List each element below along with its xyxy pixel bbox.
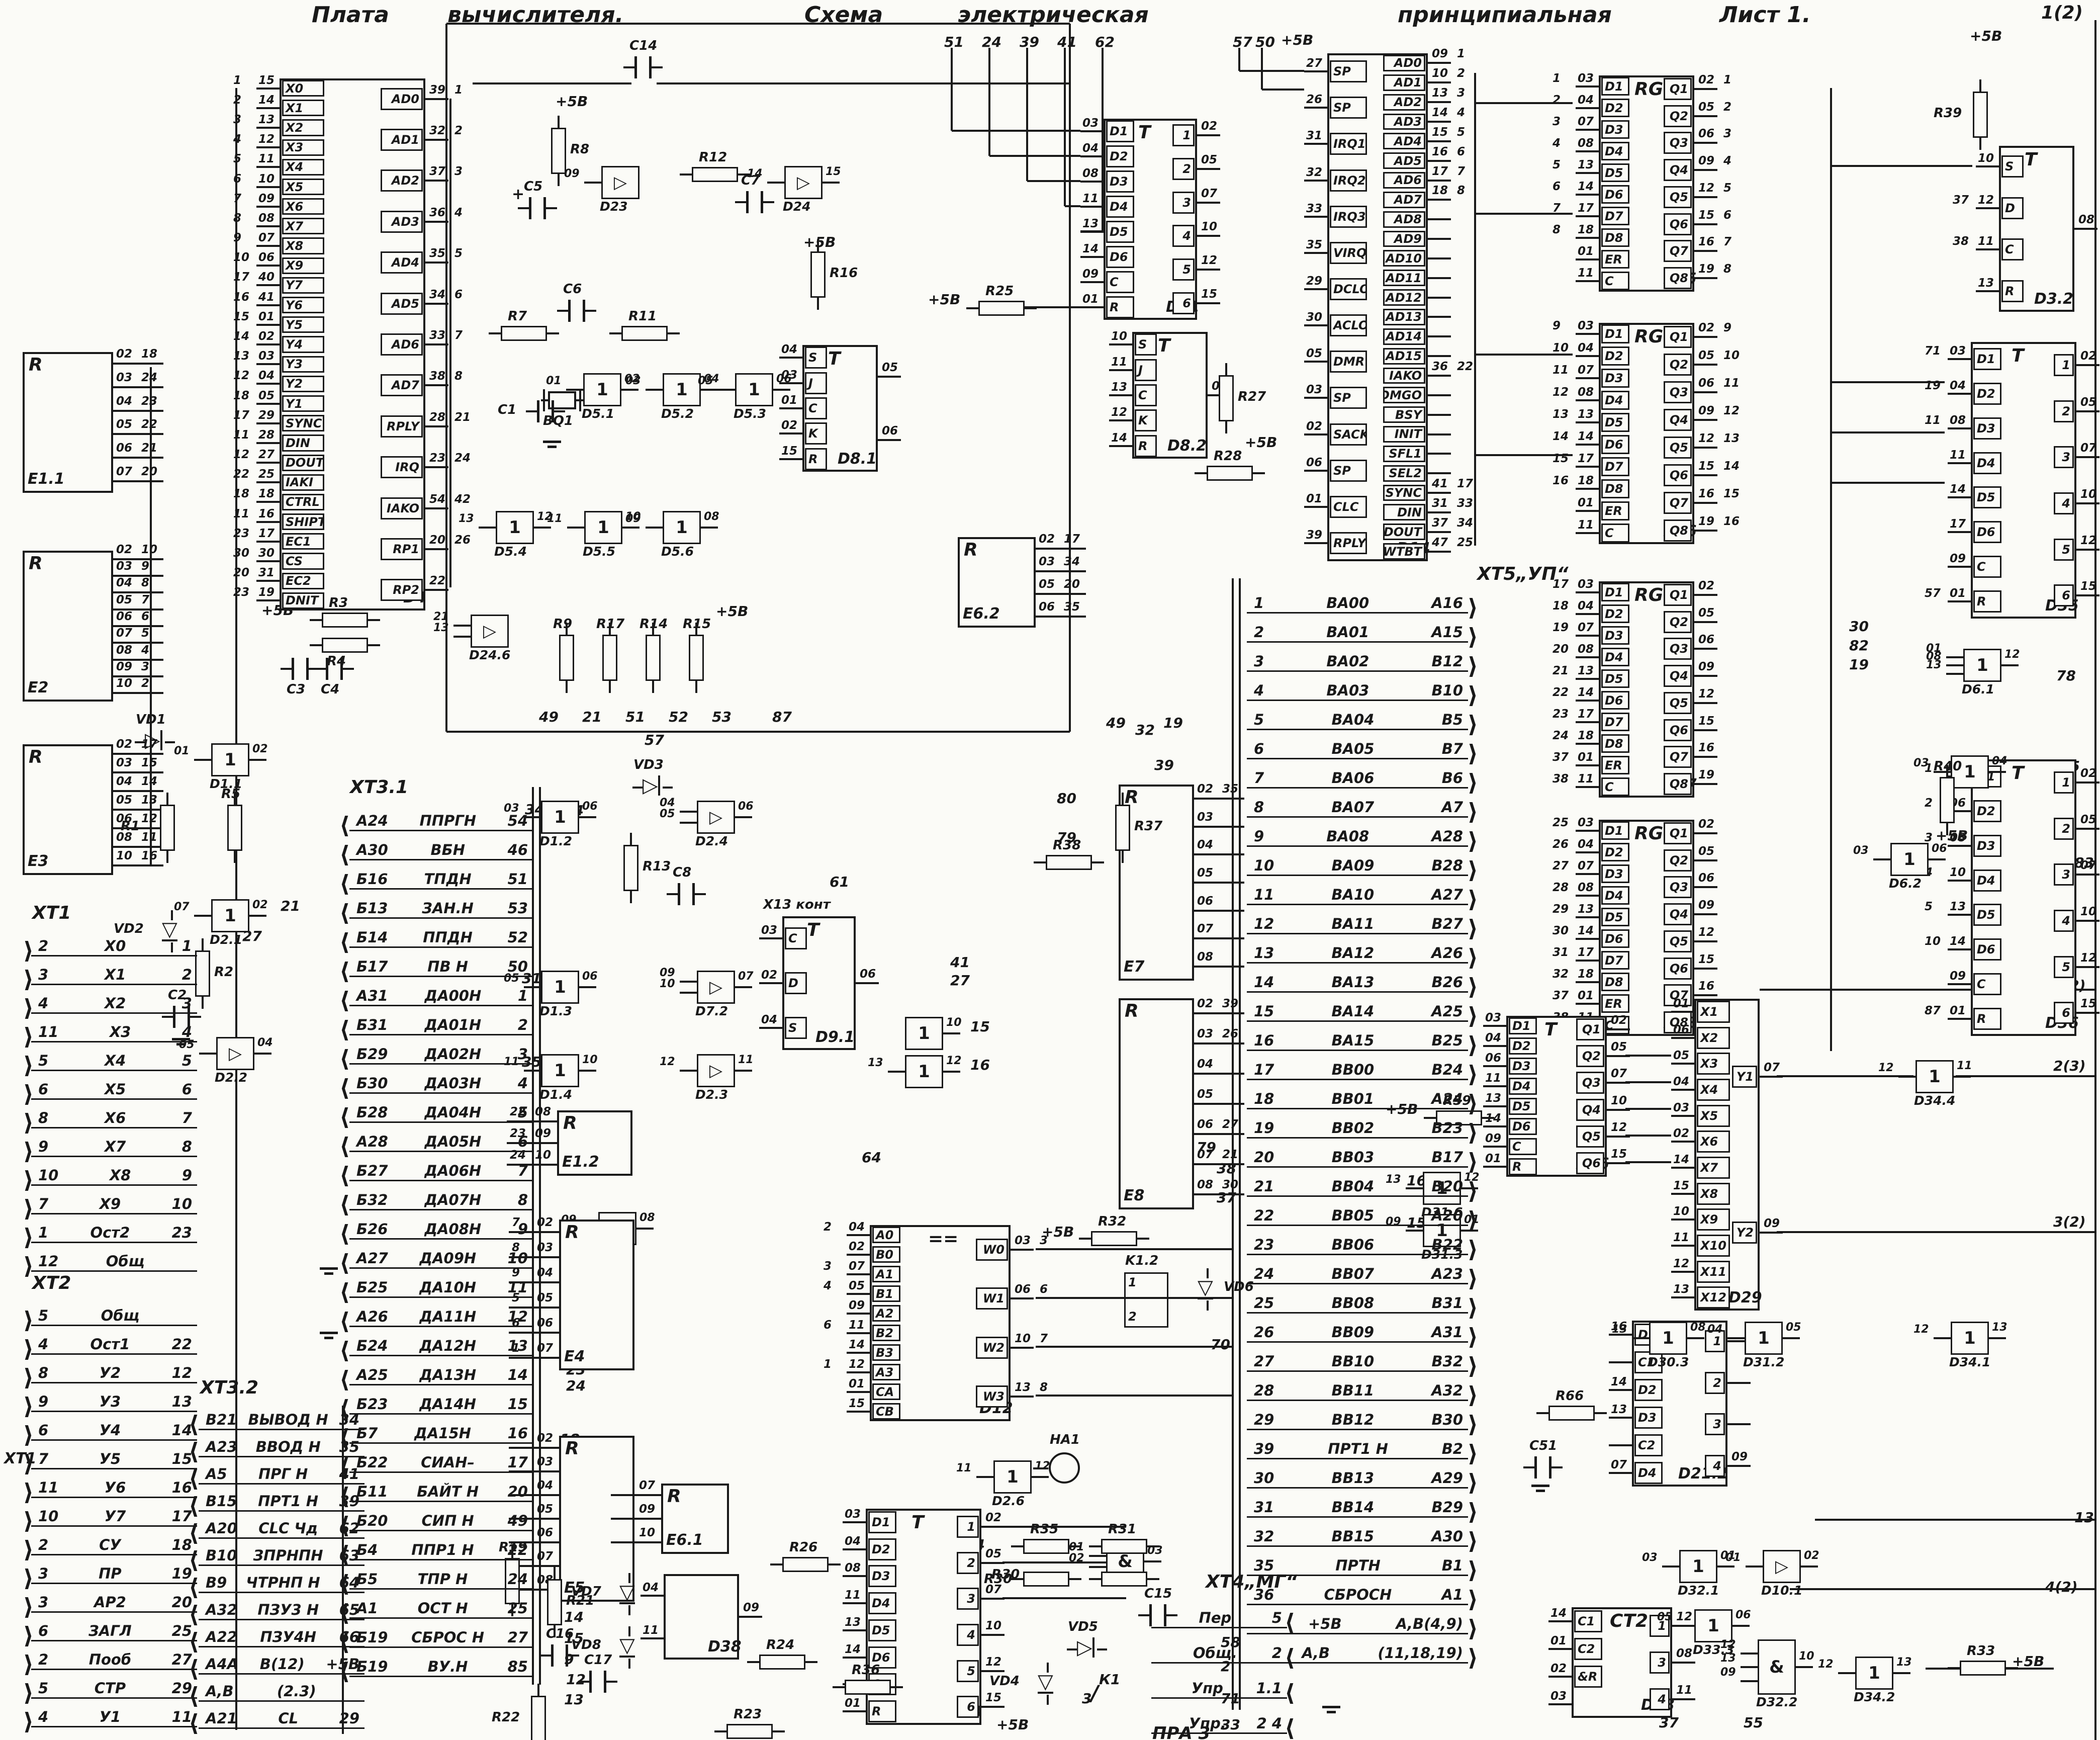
relay-pin: 2 (1128, 1311, 1137, 1323)
gate-symbol-icon: 1 (1929, 1068, 1941, 1085)
connector-row: А4АВ(12)+5В⟨ (199, 1647, 364, 1675)
row-pin: 5 (38, 1681, 48, 1696)
wire (566, 681, 568, 693)
wire (1304, 252, 1327, 254)
pin-number: 13 (459, 513, 474, 525)
pin-number: 16 (1432, 146, 1448, 158)
gate-D2.2: ▷D2.2 (216, 1037, 254, 1070)
resistor-label: R33 (1967, 1644, 1995, 1658)
connector-row: 32ВВ15А30⟩ (1247, 1518, 1468, 1547)
wire (113, 790, 163, 792)
pin-number: 9 (1723, 322, 1731, 334)
wire (1002, 1597, 1126, 1599)
row-signal: ДА01Н (424, 1018, 481, 1032)
pin-label: D4 (868, 1592, 896, 1614)
pin-number: 4 (454, 207, 463, 219)
wire (1576, 938, 1599, 940)
arrow-icon: ⟩ (1468, 1150, 1478, 1173)
wire (1428, 180, 1451, 182)
pin-label: X5 (282, 179, 324, 195)
pin-number: 14 (1553, 431, 1569, 443)
row-pin: А27 (356, 1251, 388, 1266)
row-signal: ВВ11 (1331, 1383, 1374, 1398)
arrow-icon: ⟨ (189, 1521, 199, 1544)
wire (1576, 172, 1599, 174)
wire (2076, 364, 2099, 366)
pin-number: 03 (845, 1509, 861, 1520)
connector-row: 2Пооб27⟩ (31, 1641, 197, 1670)
pin-label: 2 (957, 1552, 979, 1574)
pin-number: 07 (1578, 116, 1594, 128)
pin-number: 54 (429, 494, 445, 505)
wire (847, 1391, 870, 1393)
row-pin: 12 (1254, 917, 1274, 931)
pin-number: 35 (1222, 784, 1238, 795)
pin-number: 3 (824, 1261, 832, 1272)
row-pin: В1 (1442, 1558, 1463, 1573)
resistor-label: R25 (985, 285, 1014, 298)
pin-label: IRQ1 (1330, 133, 1367, 155)
pin-number: 36 (429, 207, 445, 219)
row-signal: У1 (100, 1710, 121, 1724)
wire (1239, 578, 1241, 1710)
row-pin: 64 (339, 1576, 359, 1590)
pin-label: Q5 (1664, 186, 1692, 208)
wire (343, 668, 354, 670)
plus5v-label: +5В (716, 604, 748, 619)
connector-row: 10У717⟩ (31, 1498, 197, 1527)
wire (540, 1655, 551, 1657)
wire (805, 1661, 817, 1663)
row-pin: 9 (1254, 829, 1264, 844)
wire (1428, 531, 1451, 533)
pin-number: 17 (1432, 166, 1448, 178)
wire (256, 88, 280, 90)
wire (1027, 180, 1080, 182)
wire (773, 1730, 785, 1732)
pin-label: ER (1601, 994, 1629, 1013)
connector-row: Б24ДА12Н13⟨ (349, 1327, 533, 1356)
wire (1576, 510, 1599, 512)
pin-number: 18 (1578, 969, 1594, 980)
pin-number: 06 (1698, 378, 1714, 389)
pin-number: 05 (1201, 154, 1217, 166)
wire (1576, 851, 1599, 853)
pin-number: 4 (1723, 155, 1731, 167)
wire (1304, 506, 1327, 508)
row-signal: ОСТ Н (418, 1601, 468, 1616)
row-pin: А15 (1431, 625, 1463, 640)
wire (779, 458, 802, 460)
wire (1304, 397, 1327, 399)
wire (1576, 488, 1599, 490)
row-pin: 27 (508, 1630, 528, 1645)
wire (1548, 1648, 1572, 1650)
pin-number: 07 (738, 971, 754, 982)
wire (1197, 269, 1220, 271)
arrow-icon: ⟩ (1468, 742, 1478, 765)
wire (843, 1710, 866, 1712)
row-pin: 49 (508, 1514, 528, 1528)
gate-symbol-icon: 1 (1976, 657, 1988, 674)
arrow-icon: ⟩ (1468, 1208, 1478, 1232)
pin-number: 23 (141, 396, 157, 407)
pin-label: R (1509, 1158, 1537, 1175)
connector-row: Упр.2 4⟨ (1151, 1699, 1287, 1734)
pin-number: 29 (1306, 276, 1322, 287)
pin-number: 8 (1553, 224, 1561, 236)
wire (1946, 664, 1963, 666)
pin-label: RPLY (381, 415, 423, 438)
connector-row: 26ВВ09А31⟩ (1247, 1314, 1468, 1343)
row-pin: 63 (339, 1548, 359, 1563)
pin-label: D1 (1601, 77, 1629, 96)
wire (1672, 1662, 1695, 1664)
arrow-icon: ⟨ (339, 1135, 350, 1158)
pin-number: 01 (1725, 1552, 1741, 1563)
pin-label: Y1 (1732, 1066, 1757, 1088)
gate-symbol-icon: ▷ (797, 174, 810, 191)
pin-label: D5 (868, 1619, 896, 1641)
pin-number: 07 (1578, 365, 1594, 376)
wire (878, 376, 901, 378)
wire (652, 66, 663, 68)
arrow-icon: ⟩ (1468, 917, 1478, 940)
pin-number: 09 (1485, 1133, 1501, 1145)
row-signal: СБРОС Н (411, 1630, 484, 1645)
pin-number: 14 (1611, 1376, 1627, 1388)
arrow-icon: ⟩ (1468, 683, 1478, 707)
wire (256, 265, 280, 267)
gate-D5.4: 1D5.4 (496, 511, 534, 544)
row-pin: 39 (1254, 1442, 1274, 1456)
row-signal: ППРГН (419, 814, 476, 828)
wire (518, 207, 529, 209)
gate-designator: D32.2 (1756, 1695, 1797, 1709)
pin-number: 13 (1082, 218, 1099, 230)
pin-label: X1 (1697, 1001, 1730, 1023)
row-signal: ВВ13 (1331, 1471, 1374, 1486)
row-pin: Б32 (356, 1193, 388, 1207)
wire (1694, 968, 1717, 970)
wire (1576, 721, 1599, 723)
wire (680, 1070, 697, 1072)
wire (547, 332, 559, 334)
row-signal: ВВ07 (1331, 1267, 1374, 1281)
wire (1304, 324, 1327, 326)
pin-number: 01 (1578, 752, 1594, 763)
gate-symbol-icon: 1 (596, 381, 608, 398)
row-signal: ВА02 (1326, 654, 1369, 669)
wire (2076, 594, 2099, 596)
wire (256, 343, 280, 345)
connector-row: 10Х89⟩ (31, 1157, 197, 1186)
pin-label: X4 (1697, 1079, 1730, 1101)
wire (1576, 532, 1599, 534)
connector-row: 5Х45⟩ (31, 1042, 197, 1071)
connector-row: Б19ВУ.Н85⟨ (349, 1648, 533, 1677)
wire (256, 560, 280, 562)
wire (1954, 1076, 1971, 1078)
pin-label: W0 (976, 1239, 1008, 1261)
relay-pin: 1 (1128, 1276, 1137, 1288)
gate-D30.3: 1D30.3 (1649, 1322, 1687, 1355)
pin-number: 11 (849, 1320, 865, 1331)
row-pin: Б24 (356, 1339, 388, 1353)
pin-number: 12 (1723, 405, 1740, 417)
pin-number: 18 (1578, 475, 1594, 487)
wire (1576, 377, 1599, 379)
pin-label: SFL1 (1383, 446, 1425, 462)
pin-number: 06 (1306, 457, 1322, 469)
gate-designator: D2.6 (992, 1494, 1025, 1508)
wire (609, 332, 621, 334)
plus5v-label: +5В (2012, 1655, 2044, 1669)
wire (1194, 1012, 1244, 1014)
pin-label: ACLO (1330, 314, 1367, 336)
pin-label: Q4 (1664, 903, 1692, 925)
wire (256, 403, 280, 405)
pin-label: Y2 (1732, 1222, 1757, 1244)
connector-row: 23ВВ06В22⟩ (1247, 1226, 1468, 1255)
row-pin: А5 (206, 1467, 227, 1482)
gate-D32.2: &D32.2 (1758, 1639, 1796, 1695)
pin-label: D3 (1106, 170, 1134, 193)
wire (1694, 859, 1717, 861)
row-signal: ВА03 (1326, 683, 1369, 698)
pin-label: Y2 (282, 376, 324, 392)
pin-number: 13 (233, 351, 249, 362)
row-pin: 3 (182, 996, 192, 1011)
row-pin: 24 (508, 1572, 528, 1587)
resistor-label: R28 (1214, 450, 1242, 463)
wire (1194, 1193, 1244, 1195)
pin-number: 09 (1698, 155, 1714, 167)
wire (1671, 1219, 1694, 1221)
row-pin: 5 (518, 1105, 528, 1120)
pin-number: 09 (116, 661, 132, 673)
row-pin: А23 (1431, 1267, 1463, 1281)
row-signal: Упр (1192, 1681, 1223, 1696)
pin-label: Q5 (1664, 930, 1692, 952)
wire (817, 239, 819, 251)
row-signal: ПРТ1 Н (1328, 1442, 1388, 1456)
pin-number: 02 (116, 349, 132, 360)
wire (2076, 1012, 2099, 1014)
pin-number: 35 (1064, 601, 1080, 613)
pin-number: 11 (1578, 773, 1594, 785)
pin-number: 21 (433, 612, 449, 623)
wire (1483, 1146, 1506, 1148)
wire (1609, 1444, 1632, 1446)
row-signal: ВВ10 (1332, 1354, 1375, 1369)
pin-number: 26 (1553, 839, 1569, 850)
pin-label: 4 (957, 1624, 979, 1646)
row-pin: В31 (1432, 1296, 1463, 1311)
rpack-designator: E1.2 (562, 1155, 599, 1170)
resistor-pack-E8 (1119, 998, 1194, 1209)
arrow-icon: ⟩ (1468, 1500, 1478, 1523)
ic-type: T (807, 921, 819, 939)
wire (1080, 181, 1104, 183)
wire (1207, 1300, 1209, 1311)
pin-label: AD3 (381, 211, 423, 233)
pin-label: DCLO (1330, 278, 1367, 300)
gate-D34.1: 1D34.1 (1951, 1322, 1989, 1355)
pin-label: S (785, 1017, 807, 1039)
pin-number: 03 (1578, 817, 1594, 829)
pin-number: 01 (1578, 246, 1594, 257)
pin-number: 33 (1306, 203, 1322, 215)
wire (1036, 593, 1086, 595)
pin-label: D1 (1601, 821, 1629, 840)
connector-row: 3АР220⟩ (31, 1584, 197, 1613)
arrow-icon: ⟩ (1468, 1471, 1478, 1494)
resistor-R37 (1115, 805, 1130, 851)
connector-row: А25ДА13Н14⟨ (349, 1356, 533, 1385)
wire (1304, 180, 1327, 182)
row-pin: 23 (1254, 1238, 1274, 1252)
pin-label: D6 (1601, 185, 1629, 204)
wire (1576, 960, 1599, 962)
resistor-R3 (322, 613, 368, 628)
row-pin: В20 (1432, 1179, 1463, 1194)
row-pin: В10 (206, 1548, 237, 1563)
pin-number: 14 (1578, 687, 1594, 699)
pin-number: 09 (1698, 900, 1714, 911)
ground-icon (1322, 1706, 1340, 1713)
wire (1232, 578, 1234, 1710)
pin-label: X7 (282, 218, 324, 234)
pin-number: 04 (116, 776, 132, 788)
pin-number: 13 (1612, 1324, 1627, 1335)
wire (1304, 433, 1327, 436)
row-signal: +5В (1308, 1617, 1342, 1631)
wire (988, 48, 990, 156)
resistor-R2 (195, 950, 210, 997)
row-pin: 10 (172, 1197, 192, 1211)
wire-label: 13 (2074, 1511, 2094, 1525)
wire (113, 433, 163, 435)
wire (1197, 235, 1220, 237)
wire (628, 1573, 630, 1583)
row-pin: 5 (38, 1309, 48, 1323)
wire (1483, 1125, 1506, 1127)
wire (1607, 1109, 1630, 1111)
pin-number: 02 (116, 739, 132, 750)
pin-label: D3 (1601, 120, 1629, 139)
pin-number: 13 (1485, 1093, 1501, 1104)
row-pin: 2 (1272, 1646, 1282, 1661)
wire (1483, 1166, 1506, 1168)
pin-number: 08 (1676, 1648, 1692, 1660)
pin-number: 17 (1950, 518, 1966, 530)
pin-label: RPLY (1330, 532, 1367, 554)
pin-label: AD6 (1383, 172, 1425, 189)
pin-label: 1 (1172, 124, 1195, 146)
pin-number: 09 (1950, 553, 1966, 565)
pin-number: 04 (1992, 756, 2007, 767)
pin-label: AD9 (1383, 231, 1425, 247)
wire (1625, 1108, 1671, 1110)
pin-number: 05 (882, 362, 898, 374)
wire (1032, 1476, 1049, 1478)
pin-number: 01 (1082, 294, 1099, 305)
pin-number: 12 (1673, 1258, 1689, 1270)
pin-number: 22 (1553, 687, 1569, 699)
pin-number: 35 (429, 248, 445, 259)
resistor-label: R5 (221, 788, 240, 801)
pin-number: 13 (258, 114, 275, 126)
row-signal: Пер (1199, 1611, 1232, 1625)
wire (1948, 845, 1971, 847)
connector-row: Б30ДА03Н4⟨ (349, 1065, 533, 1094)
pin-number: 05 (1657, 1612, 1673, 1623)
connector-row: Б16ТПДН51⟨ (349, 860, 533, 890)
row-pin: 22 (508, 1543, 528, 1557)
wire (256, 284, 280, 286)
resistor-R66 (1548, 1406, 1595, 1421)
arrow-icon: ⟨ (339, 1105, 350, 1128)
rpack-designator: E6.1 (666, 1533, 703, 1548)
wire (657, 82, 1070, 84)
row-signal: Х9 (100, 1197, 121, 1211)
pin-number: 5 (1925, 901, 1933, 913)
pin-number: 23 (1553, 709, 1569, 720)
pin-label: A2 (872, 1305, 900, 1322)
wire (1632, 1337, 1649, 1339)
row-pin: 8 (38, 1366, 48, 1380)
wire (256, 324, 280, 326)
wire (1727, 1382, 1751, 1384)
wire (1225, 363, 1227, 375)
wire (1034, 861, 1046, 863)
pin-number: 02 (1197, 784, 1213, 795)
gate-symbol-icon: & (1118, 1553, 1133, 1570)
pin-number: 13 (1896, 1657, 1912, 1668)
row-pin: 17 (508, 1455, 528, 1470)
wire (256, 481, 280, 483)
pin-number: 4 (1457, 107, 1465, 119)
wire (1671, 1089, 1694, 1091)
wire (1694, 502, 1717, 504)
pin-number: 11 (547, 513, 563, 525)
pin-label: Q6 (1664, 464, 1692, 486)
wire (847, 1273, 870, 1275)
connector-row: Б17ПВ Н50⟨ (349, 948, 533, 977)
row-pin: 17 (1254, 1063, 1274, 1077)
wire (1428, 62, 1451, 64)
gate-symbol-icon: 1 (1707, 1617, 1719, 1634)
pin-number: 07 (116, 628, 132, 639)
pin-number: 6 (824, 1320, 832, 1331)
row-signal: ВВ05 (1331, 1208, 1374, 1223)
pin-number: 02 (849, 1241, 865, 1253)
pin-label: C (785, 927, 807, 949)
gate-symbol-icon: 1 (1662, 1330, 1674, 1347)
connector-row: 18ВВ01А24⟩ (1247, 1080, 1468, 1109)
wire (1304, 216, 1327, 218)
pin-label: D3 (1973, 417, 2001, 440)
pin-number: 10 (1553, 342, 1569, 354)
pin-number: 03 (1082, 118, 1099, 129)
wire (310, 619, 322, 621)
wire (1025, 307, 1037, 309)
gate-D5.3: 1D5.3 (735, 373, 773, 406)
wire (1893, 1672, 1910, 1674)
row-pin: В26 (1432, 975, 1463, 990)
capacitor-C3 (292, 658, 309, 680)
